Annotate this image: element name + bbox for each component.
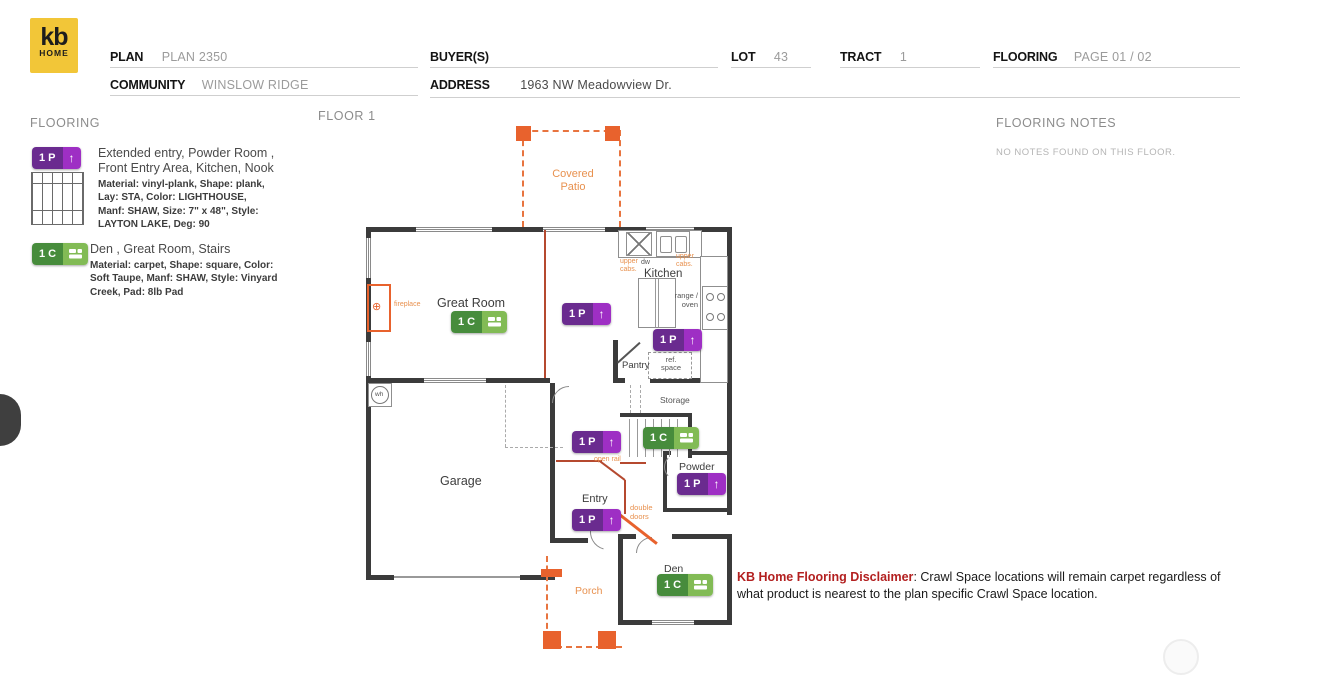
plan-field: PLAN PLAN 2350 [110,48,227,66]
floating-action-button[interactable] [1163,639,1199,675]
room-label-great-room: Great Room [437,296,505,310]
room-label-powder: Powder [679,461,715,473]
arrow-up-icon: ↑ [603,509,621,531]
burner [706,293,714,301]
carpet-tile-icon [482,311,507,333]
plan-badge-kitchen[interactable]: 1 P ↑ [653,329,702,351]
flooring-notes-body: NO NOTES FOUND ON THIS FLOOR. [996,147,1176,158]
badge-code: 1 P [572,431,603,453]
room-label-storage: Storage [660,395,690,405]
patio-post [516,126,531,141]
logo-text-home: HOME [30,48,78,58]
divider [110,67,418,68]
burner [706,313,714,321]
room-label-covered-patio: Covered Patio [542,168,604,194]
plan-value: PLAN 2350 [162,50,228,64]
porch-post [541,569,562,577]
wall [663,508,732,512]
plan-badge-entry[interactable]: 1 P ↑ [572,509,621,531]
badge-code: 1 P [562,303,593,325]
lot-field: LOT 43 [731,48,788,66]
plan-badge-den[interactable]: 1 C [657,574,713,596]
stair-dash [640,385,641,413]
logo-text-kb: kb [30,27,78,48]
wall [366,378,371,580]
garage-door-line [394,576,520,578]
kb-home-logo: kb HOME [30,18,78,73]
flooring-page-field: FLOORING PAGE 01 / 02 [993,48,1152,66]
badge-code: 1 C [643,427,674,449]
wall [550,538,588,543]
flooring-label: FLOORING [993,50,1057,64]
open-rail-label: open rail [594,456,621,463]
arrow-up-icon: ↑ [593,303,611,325]
flooring-notes-title: FLOORING NOTES [996,116,1116,130]
community-label: COMMUNITY [110,78,185,92]
garage-dash [505,447,563,448]
legend-specs: Material: vinyl-plank, Shape: plank, Lay… [98,178,275,232]
carpet-tile-icon [688,574,713,596]
porch-post [598,631,616,649]
fireplace-label: fireplace [394,301,420,308]
address-label: ADDRESS [430,78,490,92]
community-field: COMMUNITY WINSLOW RIDGE [110,76,309,94]
wall [366,575,394,580]
address-field: ADDRESS 1963 NW Meadowview Dr. [430,76,672,94]
badge-code: 1 C [32,243,63,265]
tract-value: 1 [900,50,907,64]
divider [430,67,718,68]
divider [840,67,980,68]
plan-badge-stairs[interactable]: 1 C [643,427,699,449]
window [416,227,492,232]
badge-code: 1 P [32,147,63,169]
range-oven-box [702,286,728,330]
floor-title: FLOOR 1 [318,109,376,123]
porch-post [543,631,561,649]
flooring-boundary [544,230,546,378]
arrow-up-icon: ↑ [684,329,702,351]
patio-edge [522,130,524,227]
flooring-boundary [624,480,626,514]
plan-badge-powder[interactable]: 1 P ↑ [677,473,726,495]
divider [430,97,1240,98]
room-label-pantry: Pantry [622,360,649,371]
badge-code: 1 P [677,473,708,495]
legend-text-carpet: Den , Great Room, Stairs Material: carpe… [90,242,280,299]
dishwasher [626,232,652,256]
divider [993,67,1240,68]
plan-badge-great-room[interactable]: 1 C [451,311,507,333]
wh-label: wh [375,391,383,398]
arrow-up-icon: ↑ [708,473,726,495]
room-label-porch: Porch [575,585,602,597]
arrow-up-icon: ↑ [63,147,81,169]
window [366,238,371,278]
open-rail-line [620,462,646,464]
lot-value: 43 [774,50,788,64]
flooring-page-value: PAGE 01 / 02 [1074,50,1152,64]
stair-dash [630,385,631,413]
legend-specs: Material: carpet, Shape: square, Color: … [90,259,280,300]
window [366,342,371,376]
flooring-disclaimer: KB Home Flooring Disclaimer: Crawl Space… [737,569,1240,602]
side-drawer-handle[interactable] [0,394,21,446]
sink-basin [675,236,687,253]
legend-text-plank: Extended entry, Powder Room , Front Entr… [98,146,275,232]
patio-post [605,126,620,141]
badge-code: 1 C [657,574,688,596]
patio-slider-door [543,227,605,232]
lot-label: LOT [731,50,755,64]
badge-code: 1 P [653,329,684,351]
carpet-tile-icon [63,243,88,265]
stair-tread [637,419,638,457]
sink-basin [660,236,672,253]
badge-code: 1 P [572,509,603,531]
plan-badge-hall[interactable]: 1 P ↑ [572,431,621,453]
plan-label: PLAN [110,50,143,64]
divider [731,67,811,68]
plank-swatch [31,172,84,225]
plan-badge-nook[interactable]: 1 P ↑ [562,303,611,325]
legend-title: FLOORING [30,116,100,130]
legend-rooms: Den , Great Room, Stairs [90,242,280,257]
badge-code: 1 C [451,311,482,333]
wall [692,451,732,455]
room-label-kitchen: Kitchen [644,268,682,280]
wall [727,534,732,625]
room-label-entry: Entry [582,493,608,505]
arrow-up-icon: ↑ [603,431,621,453]
divider [110,95,418,96]
room-label-garage: Garage [440,474,482,488]
address-value: 1963 NW Meadowview Dr. [520,78,672,92]
legend-badge-1p[interactable]: 1 P ↑ [32,147,81,169]
wall [618,620,654,625]
legend-badge-1c[interactable]: 1 C [32,243,88,265]
disclaimer-title: KB Home Flooring Disclaimer [737,570,913,584]
double-doors-label: double doors [630,504,662,521]
community-value: WINSLOW RIDGE [202,78,309,92]
tract-label: TRACT [840,50,881,64]
legend-rooms: Extended entry, Powder Room , Front Entr… [98,146,275,176]
upper-cabs-label: upper cabs. [676,253,702,268]
carpet-tile-icon [674,427,699,449]
burner [717,293,725,301]
wall [620,413,692,417]
range-oven-label: range / oven [664,291,698,309]
cased-opening [424,378,486,383]
wall [692,620,732,625]
tract-field: TRACT 1 [840,48,907,66]
garage-dash [505,385,506,447]
buyers-label: BUYER(S) [430,50,489,64]
ref-space-label: ref. space [656,356,686,373]
wall [618,534,623,625]
stair-tread [629,419,630,457]
upper-cabs-label: upper cabs. [620,258,646,273]
patio-edge [619,130,621,227]
fireplace-icon: ⊕ [372,300,381,313]
buyers-field: BUYER(S) [430,48,503,66]
window [652,620,694,625]
wall [672,534,732,539]
burner [717,313,725,321]
